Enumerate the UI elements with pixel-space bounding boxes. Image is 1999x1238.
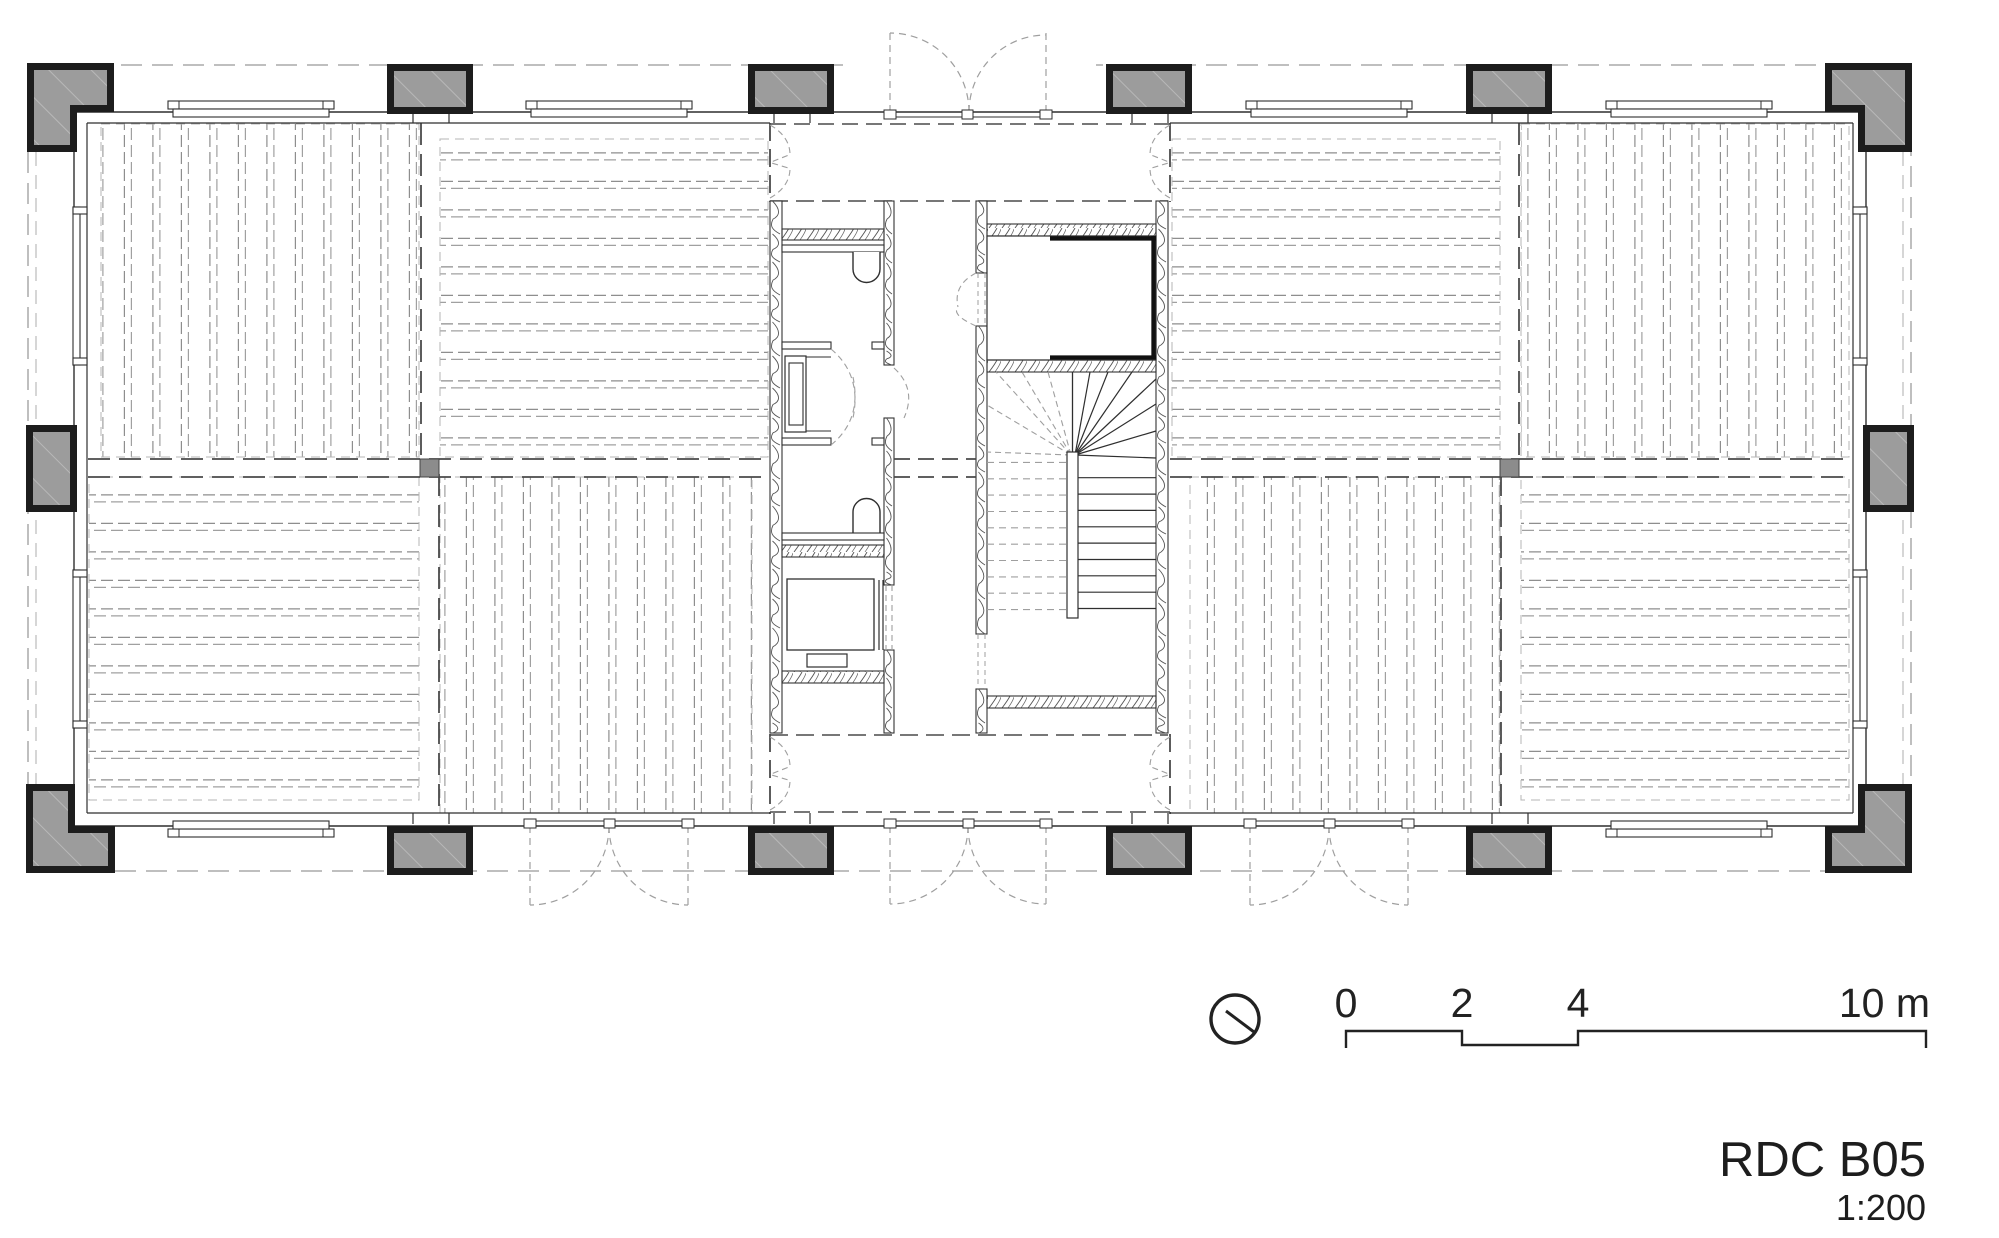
svg-text:4: 4 [1567, 980, 1590, 1026]
svg-text:2: 2 [1451, 980, 1474, 1026]
svg-text:1:200: 1:200 [1836, 1187, 1926, 1228]
svg-text:RDC B05: RDC B05 [1719, 1133, 1926, 1187]
svg-text:10 m: 10 m [1839, 980, 1930, 1026]
svg-text:0: 0 [1335, 980, 1358, 1026]
